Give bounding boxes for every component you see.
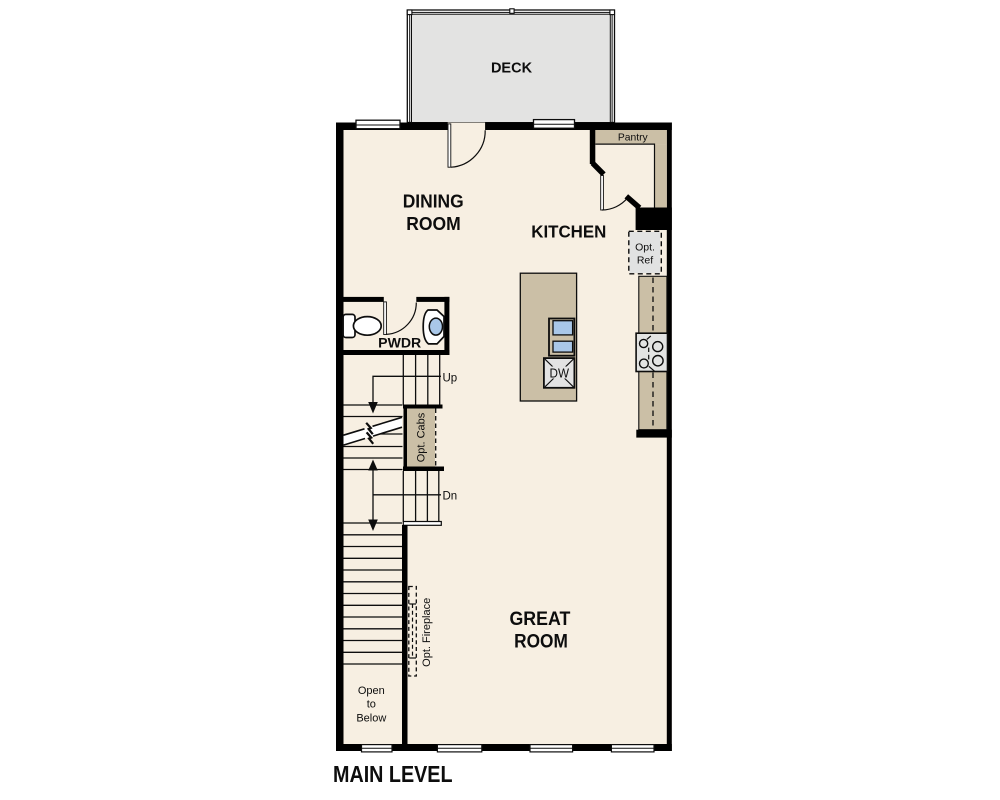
svg-text:Opt.: Opt. [635, 241, 655, 253]
svg-text:GREAT: GREAT [509, 609, 570, 630]
svg-text:MAIN LEVEL: MAIN LEVEL [333, 761, 453, 787]
svg-text:Dn: Dn [443, 490, 458, 502]
svg-text:Open: Open [358, 685, 385, 697]
svg-text:to: to [367, 699, 376, 711]
svg-text:DECK: DECK [491, 61, 533, 77]
svg-text:Up: Up [443, 372, 458, 384]
svg-text:ROOM: ROOM [514, 631, 568, 652]
svg-text:ROOM: ROOM [406, 214, 461, 234]
svg-text:Below: Below [356, 713, 386, 725]
svg-text:PWDR: PWDR [378, 336, 421, 351]
svg-text:Pantry: Pantry [618, 133, 649, 144]
svg-text:DINING: DINING [403, 192, 464, 212]
svg-text:Opt. Cabs: Opt. Cabs [416, 412, 428, 462]
svg-text:DW: DW [550, 367, 570, 381]
svg-text:KITCHEN: KITCHEN [531, 222, 606, 242]
svg-text:Opt. Fireplace: Opt. Fireplace [421, 598, 433, 667]
svg-text:Ref: Ref [637, 254, 653, 266]
